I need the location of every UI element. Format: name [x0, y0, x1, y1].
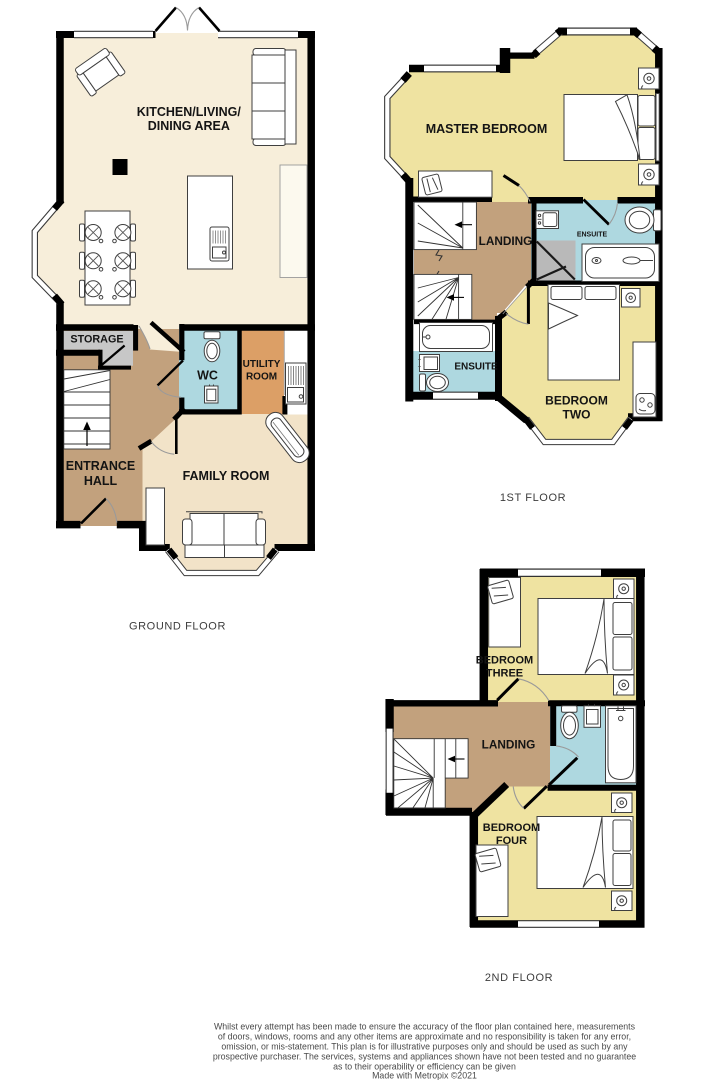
- svg-text:ROOM: ROOM: [246, 372, 277, 383]
- svg-text:of doors, windows, rooms and a: of doors, windows, rooms and any other i…: [218, 1032, 631, 1042]
- svg-text:FOUR: FOUR: [496, 835, 527, 847]
- svg-text:ENSUITE: ENSUITE: [577, 232, 608, 239]
- svg-text:THREE: THREE: [486, 668, 523, 680]
- svg-text:UTILITY: UTILITY: [243, 359, 281, 370]
- svg-text:BEDROOM: BEDROOM: [545, 394, 608, 408]
- svg-text:KITCHEN/LIVING/: KITCHEN/LIVING/: [137, 105, 242, 119]
- svg-text:MASTER BEDROOM: MASTER BEDROOM: [426, 122, 548, 136]
- svg-text:FAMILY ROOM: FAMILY ROOM: [183, 469, 270, 483]
- svg-text:prospective purchaser. The ser: prospective purchaser. The services, sys…: [213, 1052, 636, 1062]
- svg-text:1ST FLOOR: 1ST FLOOR: [500, 492, 566, 504]
- svg-text:HALL: HALL: [84, 474, 118, 488]
- svg-text:ENTRANCE: ENTRANCE: [66, 459, 135, 473]
- svg-text:BEDROOM: BEDROOM: [483, 822, 540, 834]
- svg-text:LANDING: LANDING: [479, 234, 533, 248]
- svg-text:TWO: TWO: [563, 408, 591, 422]
- svg-text:DINING AREA: DINING AREA: [148, 119, 230, 133]
- svg-text:Whilst every attempt has been: Whilst every attempt has been made to en…: [214, 1022, 636, 1032]
- svg-text:LANDING: LANDING: [482, 738, 536, 752]
- svg-text:STORAGE: STORAGE: [70, 334, 123, 346]
- svg-text:GROUND FLOOR: GROUND FLOOR: [129, 621, 226, 633]
- svg-text:2ND FLOOR: 2ND FLOOR: [485, 972, 553, 984]
- svg-text:omission, or mis-statement. Th: omission, or mis-statement. This plan is…: [221, 1042, 628, 1052]
- svg-text:WC: WC: [197, 369, 218, 383]
- svg-text:ENSUITE: ENSUITE: [454, 362, 498, 373]
- svg-text:BEDROOM: BEDROOM: [476, 655, 533, 667]
- svg-text:Made with Metropix ©2021: Made with Metropix ©2021: [372, 1071, 477, 1080]
